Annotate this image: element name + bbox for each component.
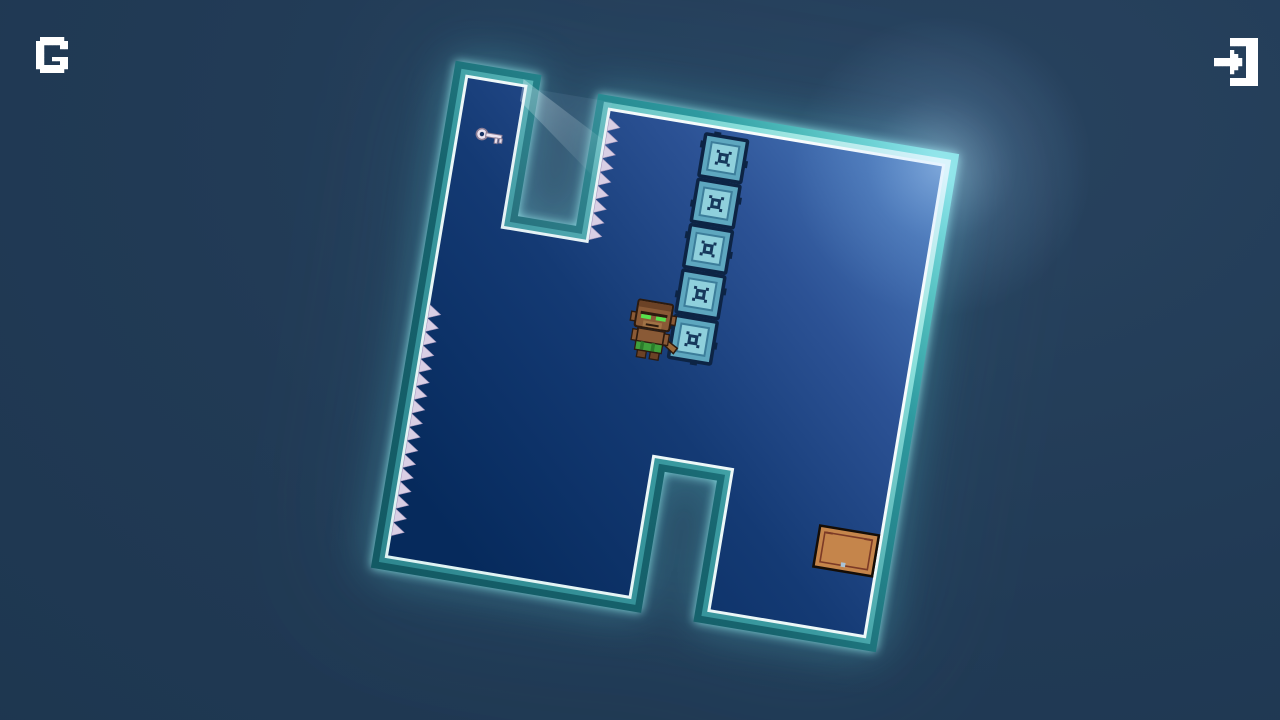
game-logo-g-icon <box>36 37 68 73</box>
exit-door-button[interactable] <box>1214 38 1258 86</box>
door-handle <box>840 562 845 567</box>
game-screen[interactable] <box>0 0 1280 720</box>
